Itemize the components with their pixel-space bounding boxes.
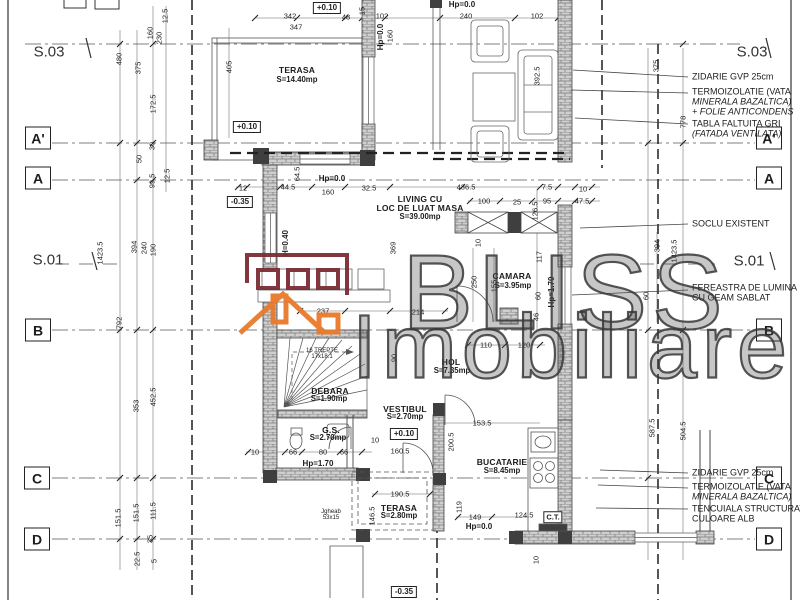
floor-plan-canvas: BLISS Imobiliare A'ABCDA'ABCDS.03S.03S.0… (0, 0, 800, 600)
watermark-imobiliare: Imobiliare (352, 297, 792, 400)
